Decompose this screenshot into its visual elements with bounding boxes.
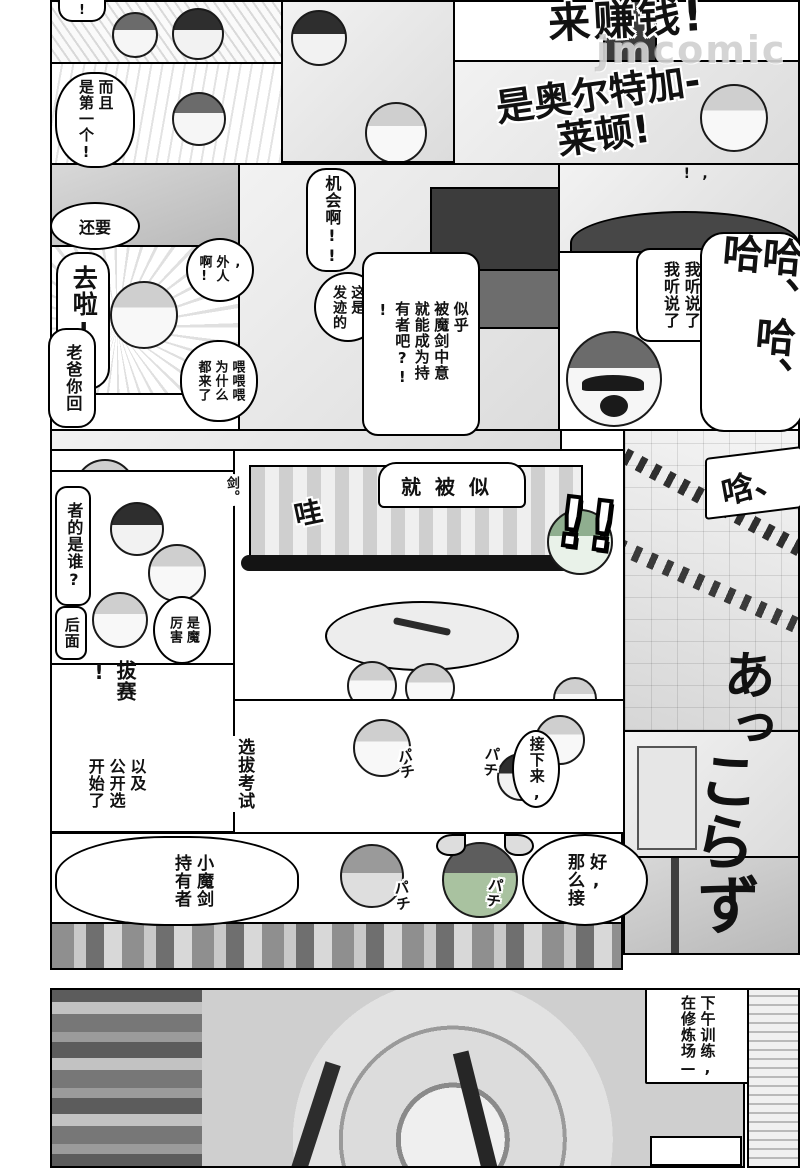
demon-horn <box>436 834 466 856</box>
mustache <box>582 375 644 391</box>
bubble-text: 是魔 厉害 <box>165 616 199 644</box>
ahoge-girl-face <box>365 102 427 163</box>
sword-rack-bar <box>241 555 597 571</box>
manga-page: ! 而且 是第一个! 来赚钱! jmcomic 是奥尔特加- 莱顿! 还要 去啦… <box>0 0 800 1168</box>
bubble-text: 似乎 被魔剑中意 就能成为持 有者吧?! ! <box>372 301 470 387</box>
speech-bubble: 接下来, <box>512 730 560 808</box>
panel-town-strip <box>50 922 623 970</box>
demon-horn <box>504 834 534 856</box>
narration-text: 下午训练, 在修炼场— <box>678 995 717 1078</box>
bubble-text: , ! <box>652 166 714 183</box>
speech-bubble: 似乎 被魔剑中意 就能成为持 有者吧?! ! <box>362 252 480 436</box>
scarf-boy-face <box>110 502 164 556</box>
speech-bubble: 机会啊!! <box>306 168 356 272</box>
speech-bubble: 好, 那么接 <box>522 834 648 926</box>
bubble-text: ! <box>79 3 85 18</box>
open-mouth <box>600 395 628 417</box>
bubble-text: 后面 <box>61 617 81 649</box>
speech-bubble: 还要 <box>50 202 140 250</box>
round-table <box>325 601 519 671</box>
bubble-text: 还要 <box>79 214 111 238</box>
sfx-laugh: 哈、哈、哈 <box>704 231 800 433</box>
speech-bubble: 喂喂喂 为什么 都来了 <box>180 340 258 422</box>
shocked-girl-face <box>110 281 178 349</box>
speech-bubble: 是魔 厉害 <box>153 596 211 664</box>
door-frame-line <box>671 858 679 955</box>
sfx-pachi: パチ <box>392 879 410 912</box>
speech-bubble: 老爸你回 <box>48 328 96 428</box>
speech-bubble: 者的是谁? <box>55 486 91 606</box>
bubble-text: 者的是谁? <box>63 502 84 590</box>
panel-knight-and-demons <box>233 699 625 834</box>
sfx-ko-ra: こら <box>686 746 756 874</box>
laugh-burst-bubble: 哈、哈、哈 <box>700 232 800 432</box>
boy-face <box>112 12 158 58</box>
orange-boy-face <box>148 544 206 602</box>
speech-bubble: 小魔剑 持有者 <box>55 836 299 926</box>
arena-beam <box>279 1061 341 1168</box>
panel-right-sliver-crowd <box>747 988 800 1168</box>
red-girl-face <box>553 677 597 701</box>
bubble-text: 接下来, <box>526 736 546 803</box>
sfx-banner: 唅、 <box>705 446 800 520</box>
bubble-text: 老爸你回 <box>62 344 83 412</box>
sfx-double-exclamation: !! <box>551 483 622 569</box>
bubble-text: 就被似 <box>401 471 503 500</box>
boy-black-hair-face <box>291 10 347 66</box>
blank-caption-box <box>650 1136 742 1166</box>
speech-bubble: 就被似 <box>378 462 526 508</box>
bubble-text: 拔赛 ! <box>86 660 138 702</box>
narration-box: 下午训练, 在修炼场— <box>645 988 749 1084</box>
bubble-text: 好, 那么接 <box>563 853 607 907</box>
bubble-text: 而且 是第一个! <box>76 79 115 162</box>
maid-face <box>172 92 226 146</box>
panel-arena-aerial <box>50 988 745 1168</box>
bubble-text: 以及 公开选 开始了 <box>84 758 146 809</box>
watermark: jmcomic <box>596 28 786 72</box>
speech-bubble: 后面 <box>55 606 87 660</box>
bubble-text: 选拔考试 <box>230 736 258 812</box>
bubble-text: 这是 发迹的 <box>330 285 366 330</box>
arena-beam <box>453 1050 507 1168</box>
bubble-text: 剑。 <box>220 474 241 506</box>
bubble-text: 小魔剑 持有者 <box>170 854 214 908</box>
sfx-zu: ず <box>690 872 754 936</box>
boy-black-hair-face <box>172 8 224 60</box>
pink-girl-face <box>92 592 148 648</box>
speech-bubble: , 外人 啊! <box>186 238 254 302</box>
bubble-text: , 外人 啊! <box>195 255 246 285</box>
panel-top-middle-scene <box>281 0 455 163</box>
bubble-text: 机会啊!! <box>321 175 342 266</box>
sfx-pachi: パチ <box>484 876 503 910</box>
speech-bubble: 而且 是第一个! <box>55 72 135 168</box>
bubble-text: 我听说了 我听说了 <box>659 261 701 329</box>
town-buildings <box>52 990 202 1168</box>
sfx-han: 唅、 <box>718 451 789 514</box>
sfx-pachi: パチ <box>481 745 499 778</box>
speech-bubble: ! <box>58 0 106 22</box>
panel-thin-strip-room <box>50 429 562 451</box>
sfx-a-tsu: あっ <box>718 648 770 752</box>
sfx-pachi: パチ <box>396 747 415 781</box>
bubble-text: 喂喂喂 为什么 都来了 <box>194 360 245 402</box>
